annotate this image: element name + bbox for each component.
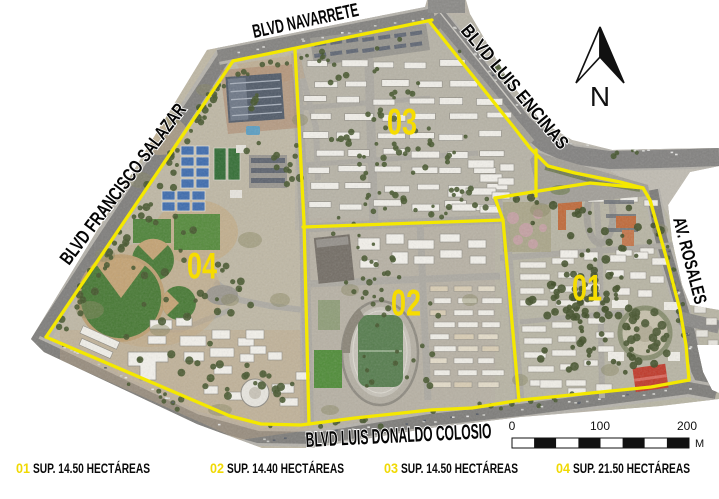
svg-text:03: 03: [387, 102, 417, 143]
svg-text:01: 01: [16, 461, 30, 476]
svg-text:01: 01: [572, 268, 602, 309]
svg-text:M: M: [695, 438, 704, 450]
svg-text:04: 04: [187, 246, 217, 287]
svg-text:0: 0: [509, 419, 516, 433]
svg-text:N: N: [590, 81, 610, 112]
svg-text:200: 200: [677, 419, 697, 433]
svg-text:04: 04: [556, 461, 570, 476]
svg-text:100: 100: [590, 419, 610, 433]
svg-text:SUP. 21.50 HECTÁREAS: SUP. 21.50 HECTÁREAS: [573, 461, 690, 476]
svg-text:SUP. 14.50 HECTÁREAS: SUP. 14.50 HECTÁREAS: [33, 461, 150, 476]
svg-text:03: 03: [384, 461, 398, 476]
svg-text:SUP. 14.40 HECTÁREAS: SUP. 14.40 HECTÁREAS: [227, 461, 344, 476]
svg-text:02: 02: [391, 283, 421, 324]
svg-text:02: 02: [210, 461, 224, 476]
svg-text:SUP. 14.50 HECTÁREAS: SUP. 14.50 HECTÁREAS: [401, 461, 518, 476]
